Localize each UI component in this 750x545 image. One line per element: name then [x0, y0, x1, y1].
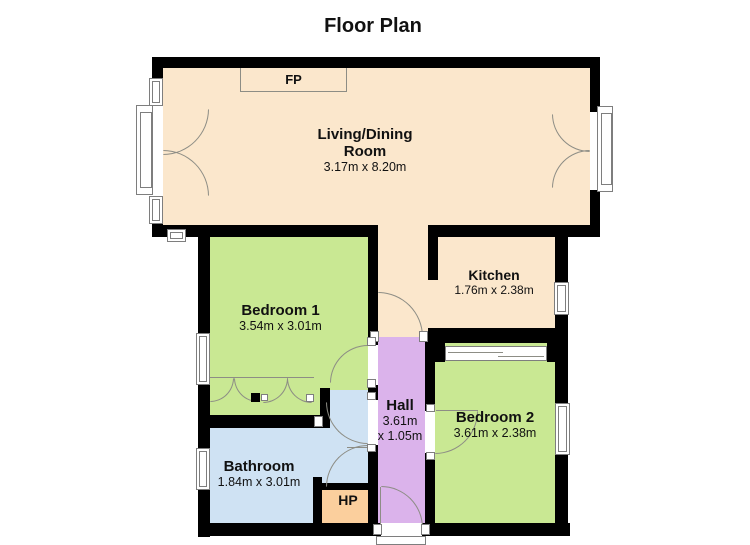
bedroom1-label: Bedroom 1 3.54m x 3.01m	[188, 302, 373, 334]
hall-name: Hall	[355, 397, 445, 414]
wall-hall-left-lower	[368, 445, 378, 523]
bathroom-name: Bathroom	[169, 458, 349, 475]
jamb-bedroom1-bottom	[367, 379, 376, 388]
hall-dims-line1: 3.61m	[355, 414, 445, 429]
window-living-bottom-small	[167, 229, 186, 242]
jamb-bedroom1-top	[367, 337, 376, 346]
wall-wardrobe-stub-right	[547, 343, 555, 362]
front-door-leaf	[380, 487, 381, 528]
wall-bottom-right	[422, 523, 570, 536]
bedroom1-dims: 3.54m x 3.01m	[188, 319, 373, 334]
hall-dims-line2: x 1.05m	[355, 429, 445, 444]
jamb-front-door-left	[373, 524, 382, 535]
floor-plan-canvas: Floor Plan FP	[0, 0, 750, 545]
jamb-front-door-right	[421, 524, 430, 535]
kitchen-label: Kitchen 1.76m x 2.38m	[424, 267, 564, 298]
hall-label: Hall 3.61m x 1.05m	[355, 397, 445, 444]
wall-living-bottom-right	[428, 225, 600, 237]
wall-right-upper	[590, 57, 600, 112]
page-title: Floor Plan	[273, 15, 473, 38]
living-room-name-line1: Living/Dining	[265, 126, 465, 143]
wall-top	[152, 57, 600, 68]
front-door-threshold	[376, 536, 426, 545]
patio-door-surround-left-inner	[140, 112, 152, 188]
hot-press-label: HP	[323, 492, 373, 508]
bathroom-dims: 1.84m x 3.01m	[169, 475, 349, 490]
window-living-left-lower	[149, 196, 163, 224]
living-room-label: Living/Dining Room 3.17m x 8.20m	[265, 126, 465, 175]
wardrobe-slider-line-left	[448, 352, 503, 353]
bedroom1-name: Bedroom 1	[188, 302, 373, 319]
fireplace-box: FP	[240, 66, 347, 92]
closet-peg-white-2	[306, 394, 314, 402]
wall-kitchen-bottom	[428, 328, 555, 343]
wall-right-lower	[590, 190, 600, 237]
wall-bottom-left	[198, 523, 381, 536]
living-room-name-line2: Room	[265, 143, 465, 160]
wardrobe-bedroom2	[445, 346, 547, 361]
wall-left-upper	[152, 68, 163, 78]
jamb-hall-top-right	[419, 331, 428, 342]
jamb-bedroom2-bottom	[426, 452, 435, 460]
wall-bedroom1-bottom	[198, 415, 330, 428]
window-bedroom1	[196, 333, 210, 385]
closet-peg-white-1	[261, 394, 268, 401]
wardrobe-slider-line-right	[498, 356, 544, 357]
bathroom-label: Bathroom 1.84m x 3.01m	[169, 458, 349, 490]
kitchen-dims: 1.76m x 2.38m	[424, 283, 564, 298]
kitchen-name: Kitchen	[424, 267, 564, 283]
patio-door-surround-right-inner	[601, 113, 612, 185]
jamb-bathroom-opening	[314, 416, 323, 427]
closet-peg-black	[251, 393, 260, 402]
fireplace-label: FP	[285, 72, 302, 87]
living-room-dims: 3.17m x 8.20m	[265, 160, 465, 175]
hot-press-name: HP	[323, 492, 373, 508]
wall-wardrobe-stub-left	[435, 343, 445, 362]
jamb-lobby-bottom	[367, 444, 376, 452]
bathroom-lobby-door-leaf	[347, 447, 368, 448]
window-living-left-upper	[149, 78, 163, 106]
wall-hall-right-lower	[425, 453, 435, 523]
